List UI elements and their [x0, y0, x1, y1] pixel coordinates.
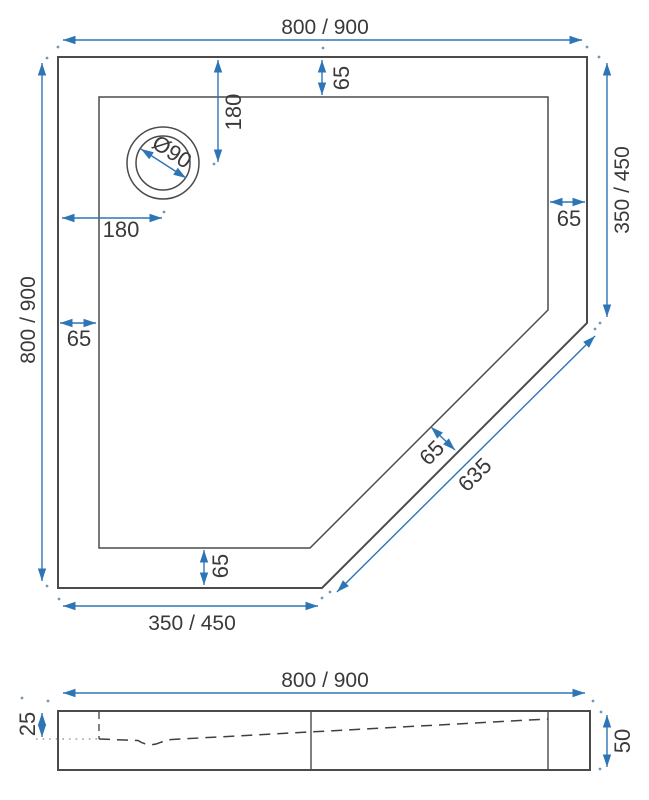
- label-right-side: 350 / 450: [611, 146, 634, 234]
- extension-dots: [21, 46, 603, 771]
- dim-line-diagonal-635: [337, 336, 595, 592]
- floor-slope-hidden-line: [99, 719, 548, 745]
- label-rim-bottom-65: 65: [208, 554, 233, 578]
- label-bottom-side: 350 / 450: [148, 612, 236, 635]
- label-rim-left-65: 65: [67, 326, 91, 351]
- tray-outer-edge: [58, 57, 587, 588]
- dimension-labels: 800 / 900 800 / 900 350 / 450 350 / 450 …: [15, 16, 635, 753]
- side-view-outline: [36, 711, 590, 770]
- label-rim-right-65: 65: [557, 206, 581, 231]
- shower-tray-drawing: 800 / 900 800 / 900 350 / 450 350 / 450 …: [0, 0, 649, 800]
- dimension-lines: [42, 40, 607, 767]
- label-side-ledge-25: 25: [15, 712, 40, 736]
- label-left-height: 800 / 900: [17, 276, 40, 364]
- label-diagonal-635: 635: [453, 453, 497, 497]
- label-rim-top-65: 65: [329, 66, 354, 90]
- label-side-width: 800 / 900: [281, 669, 369, 692]
- label-side-height-50: 50: [610, 729, 635, 753]
- label-top-width: 800 / 900: [281, 16, 369, 39]
- technical-drawing-page: 800 / 900 800 / 900 350 / 450 350 / 450 …: [0, 0, 649, 800]
- label-drain-vertical-180: 180: [221, 94, 246, 131]
- top-view-outline: [58, 57, 587, 588]
- label-drain-horizontal-180: 180: [103, 217, 140, 242]
